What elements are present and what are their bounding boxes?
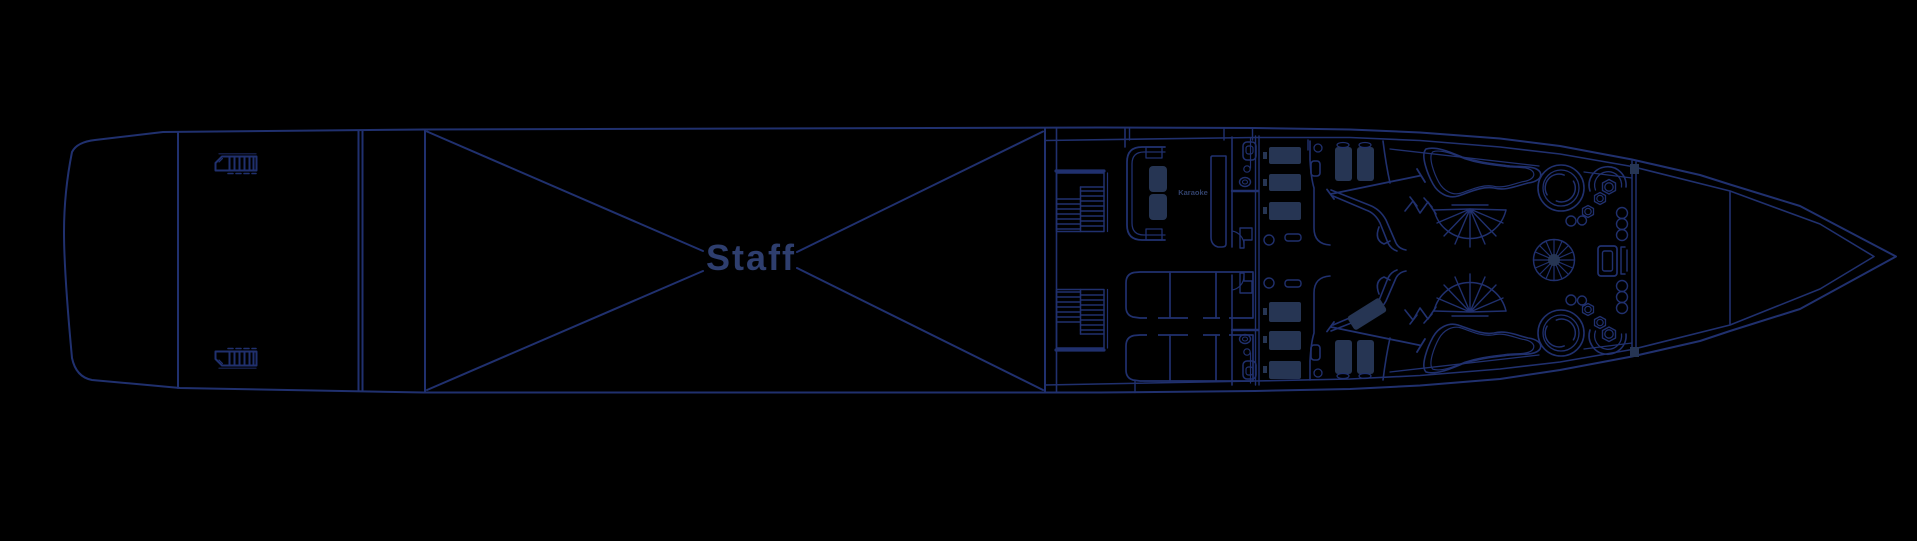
svg-text:Staff: Staff [706,237,796,278]
svg-text:Karaoke: Karaoke [1178,188,1208,197]
